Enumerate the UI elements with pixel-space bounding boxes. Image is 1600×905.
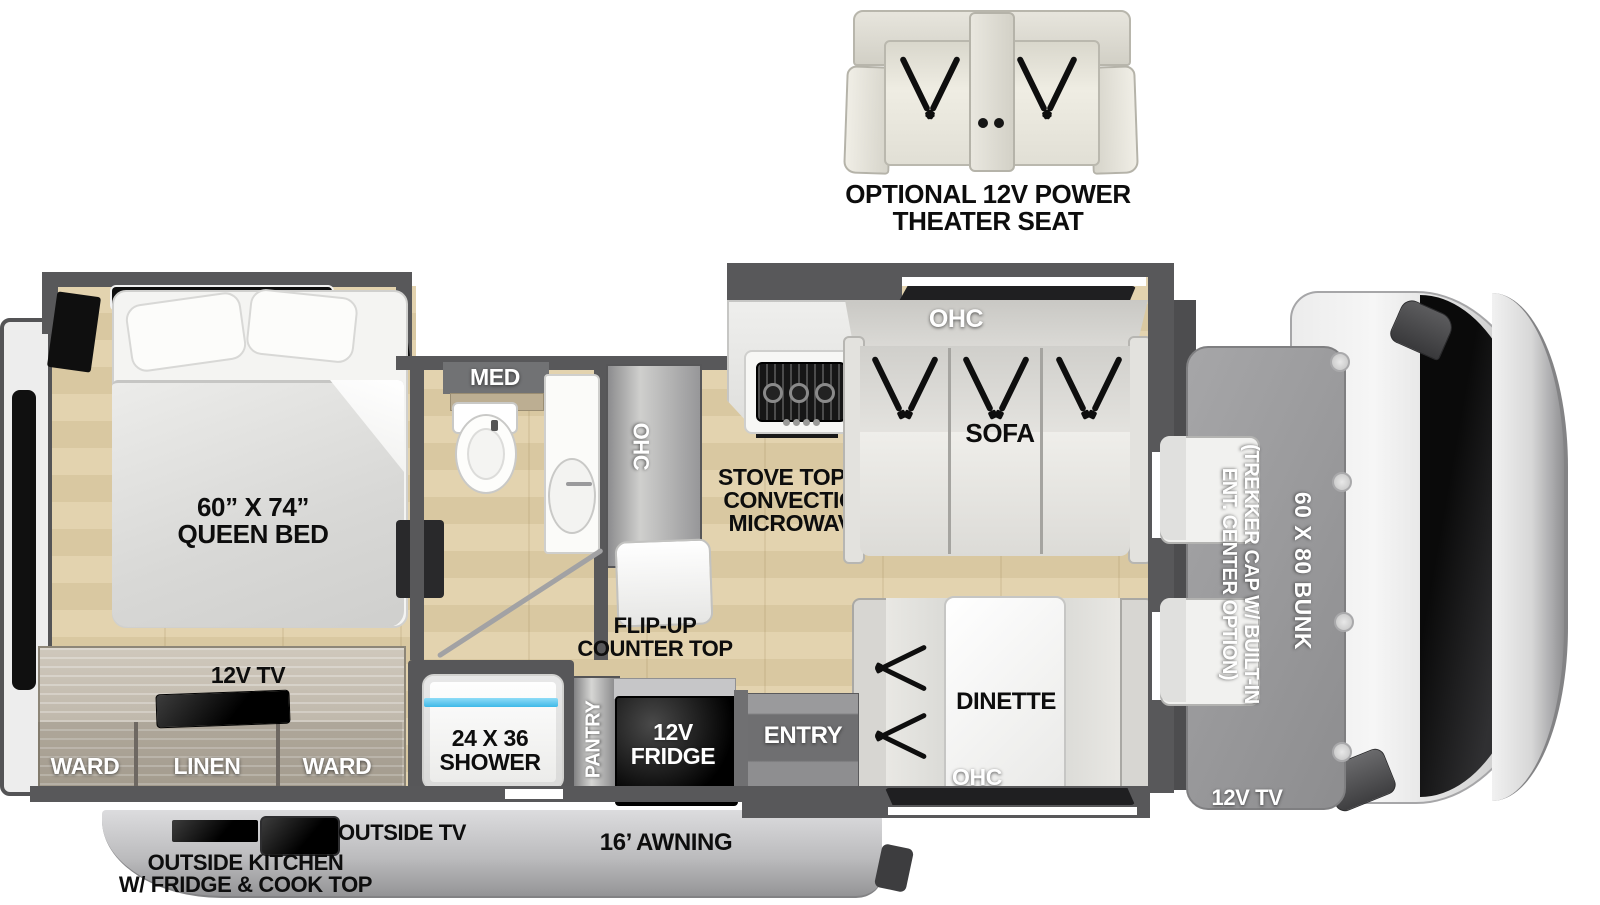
cab-seat-back — [1160, 436, 1186, 540]
theater-seat-label: OPTIONAL 12V POWER THEATER SEAT — [818, 181, 1158, 235]
bedroom-tv-label: 12V TV — [168, 664, 328, 688]
flip-up-counter-label: FLIP-UP COUNTER TOP — [555, 615, 755, 661]
bath-sink — [548, 458, 596, 534]
sofa-cushion-divider — [1040, 348, 1043, 554]
dinette-slide-window — [888, 807, 1137, 815]
theater-seat-graphic — [845, 8, 1135, 173]
cab-rivet-icon — [1332, 742, 1352, 762]
sofa-ohc-label: OHC — [906, 306, 1006, 332]
ward-left-label: WARD — [35, 755, 135, 779]
toilet-button — [491, 420, 498, 431]
cab-rivet-icon — [1334, 612, 1354, 632]
bunk-overlay — [1186, 346, 1346, 810]
cab-nose — [1492, 293, 1568, 801]
sofa-slide-top-wall — [727, 263, 1170, 277]
recliner-mark-icon — [900, 52, 960, 132]
rv-floorplan: OPTIONAL 12V POWER THEATER SEAT OUTSIDE … — [0, 0, 1600, 905]
cab-tv-label: 12V TV — [1187, 787, 1307, 810]
shower-label: 24 X 36 SHOWER — [410, 727, 570, 775]
outside-kitchen-label: OUTSIDE KITCHEN W/ FRIDGE & COOK TOP — [103, 852, 388, 896]
ohc-tall-cabinet-label: OHC — [629, 401, 652, 491]
outside-kitchen-door — [172, 820, 258, 842]
theater-seat-console — [969, 12, 1015, 172]
stove-knob — [803, 419, 810, 426]
stove-burner — [815, 383, 835, 403]
cab-rivet-icon — [1330, 352, 1350, 372]
rear-window — [12, 390, 36, 690]
recliner-mark-icon — [878, 645, 930, 691]
outside-tv-label: OUTSIDE TV — [338, 822, 548, 845]
cabinet-divider — [276, 722, 280, 792]
bed-pillow — [245, 288, 359, 365]
stove-burner — [789, 383, 809, 403]
kitchen-back-wall — [742, 277, 902, 303]
trekker-cap-label: (TREKKER CAP W/ BUILT-IN ENT. CENTER OPT… — [1218, 409, 1262, 739]
bedroom-tv — [155, 690, 290, 729]
recliner-mark-icon — [1056, 352, 1122, 432]
stove-burner — [763, 383, 783, 403]
pantry-label: PANTRY — [584, 684, 605, 794]
bath-faucet — [566, 482, 592, 486]
medicine-cabinet-label: MED — [445, 366, 545, 390]
theater-seat-cupholder — [994, 118, 1004, 128]
sofa-label: SOFA — [950, 420, 1050, 447]
recliner-mark-icon — [872, 352, 938, 432]
awning-label: 16’ AWNING — [566, 831, 766, 856]
theater-seat-cupholder — [978, 118, 988, 128]
sofa-slide-window — [902, 277, 1146, 286]
entry-side-wall — [734, 690, 748, 790]
sofa-cushion-divider — [948, 348, 951, 554]
stove-knob — [783, 419, 790, 426]
fridge-label: 12V FRIDGE — [613, 720, 733, 768]
cab-rivet-icon — [1332, 472, 1352, 492]
bottom-wall-left — [30, 786, 742, 802]
linen-label: LINEN — [147, 755, 267, 779]
recliner-mark-icon — [878, 713, 930, 759]
recliner-mark-icon — [1017, 52, 1077, 132]
entry-label: ENTRY — [743, 724, 863, 749]
shower-glass — [424, 698, 558, 707]
toilet-seat — [467, 428, 505, 480]
dinette-label: DINETTE — [926, 690, 1086, 715]
bottom-wall-window — [505, 789, 563, 799]
ward-right-label: WARD — [287, 755, 387, 779]
bedroom-slide-top-wall — [42, 272, 412, 287]
sofa-seat — [860, 432, 1130, 556]
stove-knob — [793, 419, 800, 426]
ohc-tall-cabinet — [606, 364, 702, 568]
bunk-label: 60 X 80 BUNK — [1290, 421, 1314, 721]
queen-bed-label: 60” X 74” QUEEN BED — [133, 494, 373, 548]
stove-knob — [813, 419, 820, 426]
bath-left-wall — [410, 362, 424, 660]
dinette-slide-topper — [885, 788, 1135, 805]
cab-seat-back — [1160, 598, 1186, 702]
